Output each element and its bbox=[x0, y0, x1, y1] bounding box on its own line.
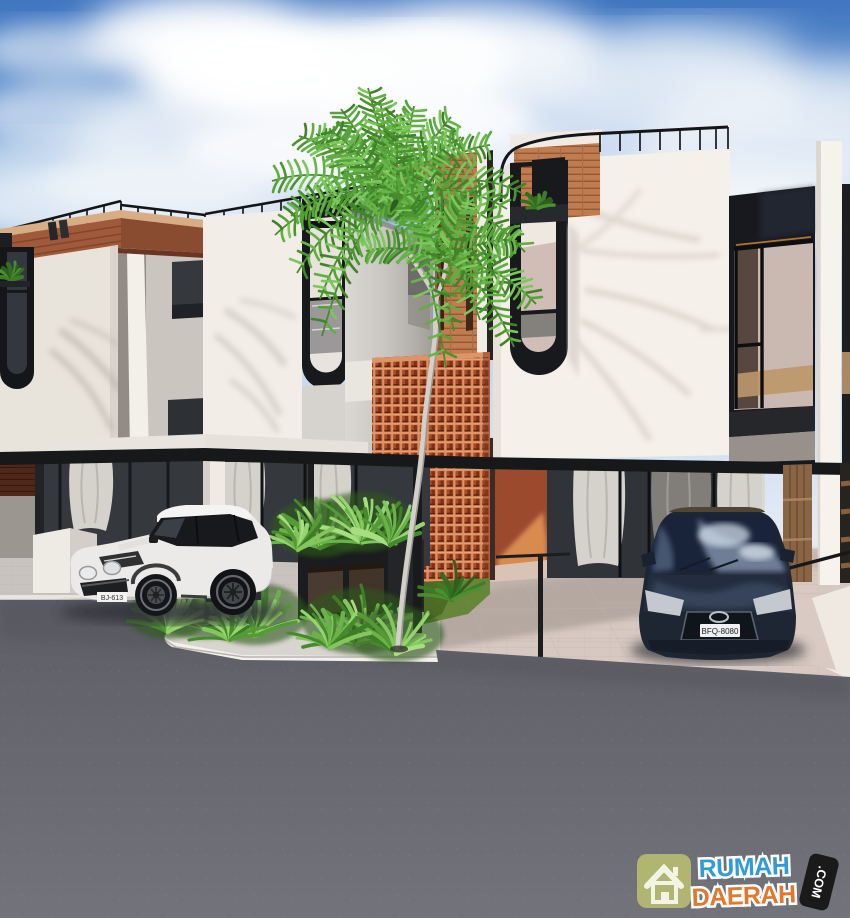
svg-text:RUMAH: RUMAH bbox=[698, 852, 789, 883]
svg-text:BFQ-8080: BFQ-8080 bbox=[702, 627, 739, 636]
svg-text:BJ-613: BJ-613 bbox=[101, 595, 123, 602]
svg-text:DAERAH: DAERAH bbox=[691, 880, 796, 912]
